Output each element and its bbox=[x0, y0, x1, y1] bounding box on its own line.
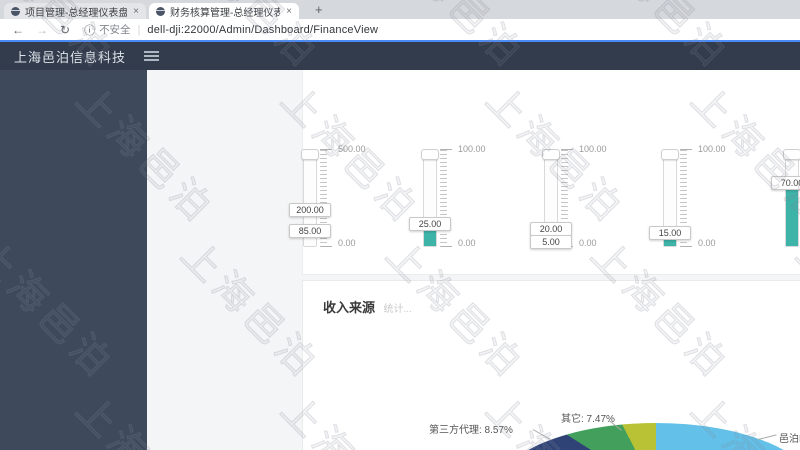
brand-title: 上海邑泊信息科技 bbox=[14, 47, 126, 66]
pie-leader-line bbox=[758, 434, 777, 440]
slider-1-top-handle[interactable] bbox=[301, 149, 319, 160]
slider-tick bbox=[320, 246, 332, 247]
url-separator: | bbox=[138, 24, 141, 36]
reload-icon[interactable]: ↻ bbox=[60, 23, 70, 37]
slider-1-value-tooltip: 200.00 bbox=[289, 203, 331, 217]
browser-tab-1[interactable]: 项目管理-总经理仪表盘 × bbox=[4, 3, 146, 19]
pie-leader-line bbox=[533, 429, 551, 440]
slider-tick bbox=[561, 149, 573, 150]
slider-2-max-label: 100.00 bbox=[458, 144, 502, 154]
sliders-layer: 500.000.00200.0085.00100.000.0025.00100.… bbox=[302, 70, 800, 276]
slider-2-track[interactable] bbox=[423, 155, 437, 247]
forward-icon[interactable]: → bbox=[36, 23, 48, 37]
back-icon[interactable]: ← bbox=[12, 23, 24, 37]
slider-5-track[interactable] bbox=[785, 155, 799, 247]
slider-1-value-tooltip: 85.00 bbox=[289, 224, 331, 238]
slider-4-min-label: 0.00 bbox=[698, 238, 742, 248]
tab-title: 项目管理-总经理仪表盘 bbox=[25, 4, 127, 19]
tab-title: 财务核算管理-总经理仪表盘 bbox=[170, 4, 280, 19]
slider-5-value-tooltip: 70.00 bbox=[771, 176, 800, 190]
slider-tick bbox=[320, 149, 332, 150]
slider-3-min-label: 0.00 bbox=[579, 238, 623, 248]
globe-favicon-icon bbox=[11, 7, 20, 16]
slider-tick bbox=[680, 149, 692, 150]
slider-4-value-tooltip: 15.00 bbox=[649, 226, 691, 240]
globe-favicon-icon bbox=[156, 7, 165, 16]
slider-2-value-tooltip: 25.00 bbox=[409, 217, 451, 231]
security-label: 不安全 bbox=[99, 22, 131, 37]
browser-tab-2[interactable]: 财务核算管理-总经理仪表盘 × bbox=[149, 3, 299, 19]
section-title: 收入来源 bbox=[323, 300, 375, 315]
pie-label-third-party: 第三方代理: 8.57% bbox=[429, 421, 513, 436]
new-tab-button[interactable]: + bbox=[309, 2, 329, 19]
slider-1-max-label: 500.00 bbox=[338, 144, 382, 154]
income-source-card: 收入来源 统计... 其它: 7.47% 第三方代理: 8.57% 邑泊ERP:… bbox=[302, 280, 800, 450]
slider-3-value-tooltip: 5.00 bbox=[530, 235, 572, 249]
slider-3-top-handle[interactable] bbox=[542, 149, 560, 160]
slider-2-top-handle[interactable] bbox=[421, 149, 439, 160]
tab-close-icon[interactable]: × bbox=[286, 6, 292, 17]
info-icon[interactable]: ⓘ bbox=[84, 22, 95, 38]
slider-4-max-label: 100.00 bbox=[698, 144, 742, 154]
slider-2-min-label: 0.00 bbox=[458, 238, 502, 248]
sidebar bbox=[0, 70, 147, 450]
slider-3-value-tooltip: 20.00 bbox=[530, 222, 572, 236]
slider-3-max-label: 100.00 bbox=[579, 144, 623, 154]
slider-tick bbox=[680, 246, 692, 247]
slider-5-top-handle[interactable] bbox=[783, 149, 800, 160]
pie-chart[interactable] bbox=[496, 423, 800, 450]
browser-tab-strip: 项目管理-总经理仪表盘 × 财务核算管理-总经理仪表盘 × + bbox=[0, 0, 800, 19]
card-title-row: 收入来源 统计... bbox=[323, 297, 412, 317]
main-content: 500.000.00200.0085.00100.000.0025.00100.… bbox=[147, 70, 800, 450]
slider-1-min-label: 0.00 bbox=[338, 238, 382, 248]
section-subtitle: 统计... bbox=[383, 304, 411, 315]
slider-2-ruler bbox=[440, 150, 447, 247]
url-text[interactable]: dell-dji:22000/Admin/Dashboard/FinanceVi… bbox=[147, 24, 378, 36]
pie-label-erp: 邑泊ERP: 24.57% bbox=[779, 430, 800, 445]
browser-url-bar: ← → ↻ ⓘ 不安全 | dell-dji:22000/Admin/Dashb… bbox=[0, 19, 800, 40]
slider-tick bbox=[440, 149, 452, 150]
hamburger-menu-icon[interactable] bbox=[144, 49, 159, 64]
slider-4-top-handle[interactable] bbox=[661, 149, 679, 160]
slider-tick bbox=[440, 246, 452, 247]
screen: 项目管理-总经理仪表盘 × 财务核算管理-总经理仪表盘 × + ← → ↻ ⓘ … bbox=[0, 0, 800, 450]
pie-label-other: 其它: 7.47% bbox=[561, 410, 615, 425]
slider-5-fill bbox=[786, 182, 798, 246]
tab-close-icon[interactable]: × bbox=[133, 6, 139, 17]
app-header: 上海邑泊信息科技 bbox=[0, 42, 800, 70]
